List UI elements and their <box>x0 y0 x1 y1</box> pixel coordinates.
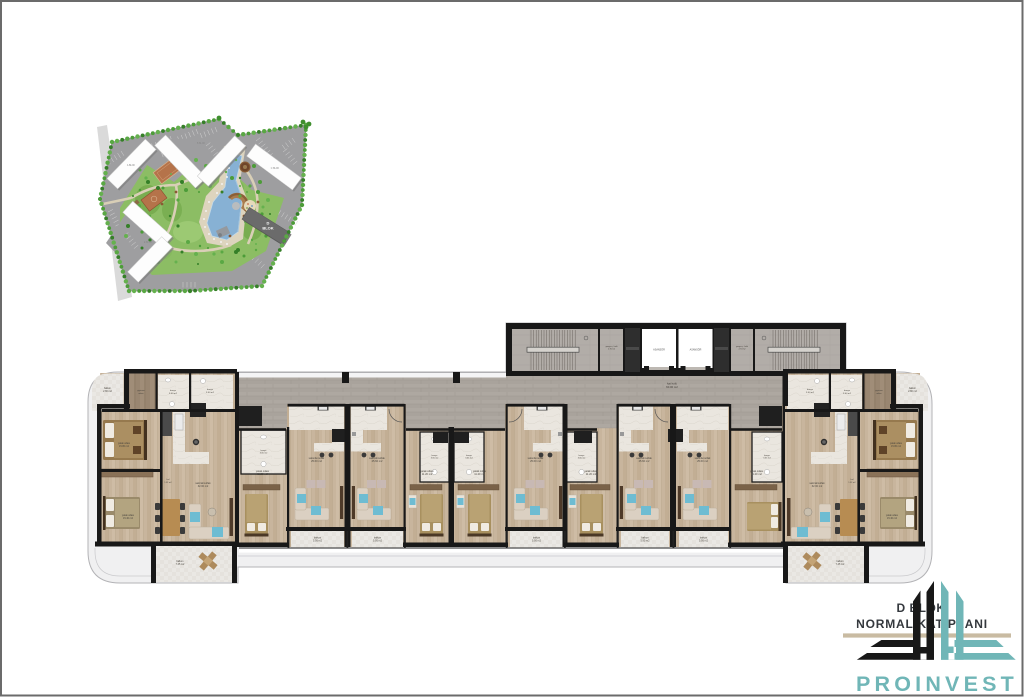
svg-text:3.65 m2: 3.65 m2 <box>763 458 771 460</box>
svg-text:NORMAL KAT PLANI: NORMAL KAT PLANI <box>856 617 988 631</box>
svg-text:banyo: banyo <box>170 390 177 392</box>
svg-text:3.65 m2: 3.65 m2 <box>260 453 268 455</box>
svg-text:ASANSÖR: ASANSÖR <box>653 349 665 352</box>
svg-text:B BLOK: B BLOK <box>197 143 206 145</box>
svg-text:1.93 m2: 1.93 m2 <box>164 482 172 484</box>
svg-text:60.00 m2: 60.00 m2 <box>666 385 678 389</box>
svg-text:5.95 m2: 5.95 m2 <box>313 540 323 543</box>
svg-text:odası: odası <box>876 393 882 395</box>
svg-text:11.20 m2: 11.20 m2 <box>586 472 597 476</box>
svg-text:hol: hol <box>167 479 170 481</box>
svg-text:banyo: banyo <box>807 389 814 391</box>
svg-text:giyinme: giyinme <box>137 390 145 392</box>
svg-text:banyo: banyo <box>207 389 214 391</box>
svg-text:11.20 m2: 11.20 m2 <box>422 472 433 476</box>
svg-text:11.20 m2: 11.20 m2 <box>474 472 485 476</box>
svg-text:11.20 m2: 11.20 m2 <box>751 472 762 476</box>
svg-text:15.40 m2: 15.40 m2 <box>887 517 898 520</box>
svg-text:giyinme: giyinme <box>875 390 883 392</box>
svg-text:odası: odası <box>138 393 144 395</box>
svg-text:banyo: banyo <box>764 455 771 457</box>
svg-text:25.60 m2: 25.60 m2 <box>639 459 650 463</box>
svg-text:3.00 m2: 3.00 m2 <box>206 392 215 394</box>
svg-text:25.60 m2: 25.60 m2 <box>697 459 708 463</box>
svg-text:25.60 m2: 25.60 m2 <box>311 459 322 463</box>
svg-text:5.95 m2: 5.95 m2 <box>640 540 650 543</box>
svg-text:15.80 m2: 15.80 m2 <box>891 445 902 448</box>
svg-text:25.60 m2: 25.60 m2 <box>530 459 541 463</box>
svg-text:banyo: banyo <box>261 450 268 452</box>
svg-text:3.65 m2: 3.65 m2 <box>431 458 439 460</box>
svg-text:32.00 m2: 32.00 m2 <box>198 485 209 488</box>
svg-text:banyo: banyo <box>579 455 586 457</box>
svg-text:E BLOK: E BLOK <box>144 242 153 244</box>
svg-text:3.00 m2: 3.00 m2 <box>169 393 178 395</box>
svg-text:C BLOK: C BLOK <box>271 168 280 170</box>
svg-text:D BLOK: D BLOK <box>897 601 946 615</box>
svg-text:2.70 m2: 2.70 m2 <box>739 349 746 351</box>
svg-text:ASANSÖR: ASANSÖR <box>690 349 702 352</box>
svg-text:3.00 m2: 3.00 m2 <box>806 392 815 394</box>
svg-text:2.70 m2: 2.70 m2 <box>608 349 615 351</box>
svg-text:11.20 m2: 11.20 m2 <box>257 472 268 476</box>
svg-text:2.80 m2: 2.80 m2 <box>103 390 112 393</box>
svg-text:hol: hol <box>851 479 854 481</box>
svg-text:15.40 m2: 15.40 m2 <box>123 517 134 520</box>
svg-text:3.65 m2: 3.65 m2 <box>465 458 473 460</box>
svg-text:A BLOK: A BLOK <box>127 164 136 167</box>
svg-text:3.65 m2: 3.65 m2 <box>578 458 586 460</box>
svg-text:7.45 m2: 7.45 m2 <box>836 563 845 566</box>
svg-text:15.80 m2: 15.80 m2 <box>119 445 130 448</box>
svg-text:5.95 m2: 5.95 m2 <box>532 540 542 543</box>
svg-text:3.00 m2: 3.00 m2 <box>843 393 852 395</box>
svg-text:5.95 m2: 5.95 m2 <box>699 540 709 543</box>
svg-text:banyo: banyo <box>466 455 473 457</box>
svg-text:2.80 m2: 2.80 m2 <box>908 390 917 393</box>
svg-text:7.45 m2: 7.45 m2 <box>176 563 185 566</box>
svg-text:banyo: banyo <box>432 455 439 457</box>
svg-text:5.95 m2: 5.95 m2 <box>373 540 383 543</box>
svg-text:PROINVEST: PROINVEST <box>856 672 1018 696</box>
svg-text:32.00 m2: 32.00 m2 <box>812 485 823 488</box>
svg-text:1.93 m2: 1.93 m2 <box>848 482 856 484</box>
svg-text:25.60 m2: 25.60 m2 <box>372 459 383 463</box>
svg-text:banyo: banyo <box>844 390 851 392</box>
svg-text:BLOK: BLOK <box>262 226 273 231</box>
